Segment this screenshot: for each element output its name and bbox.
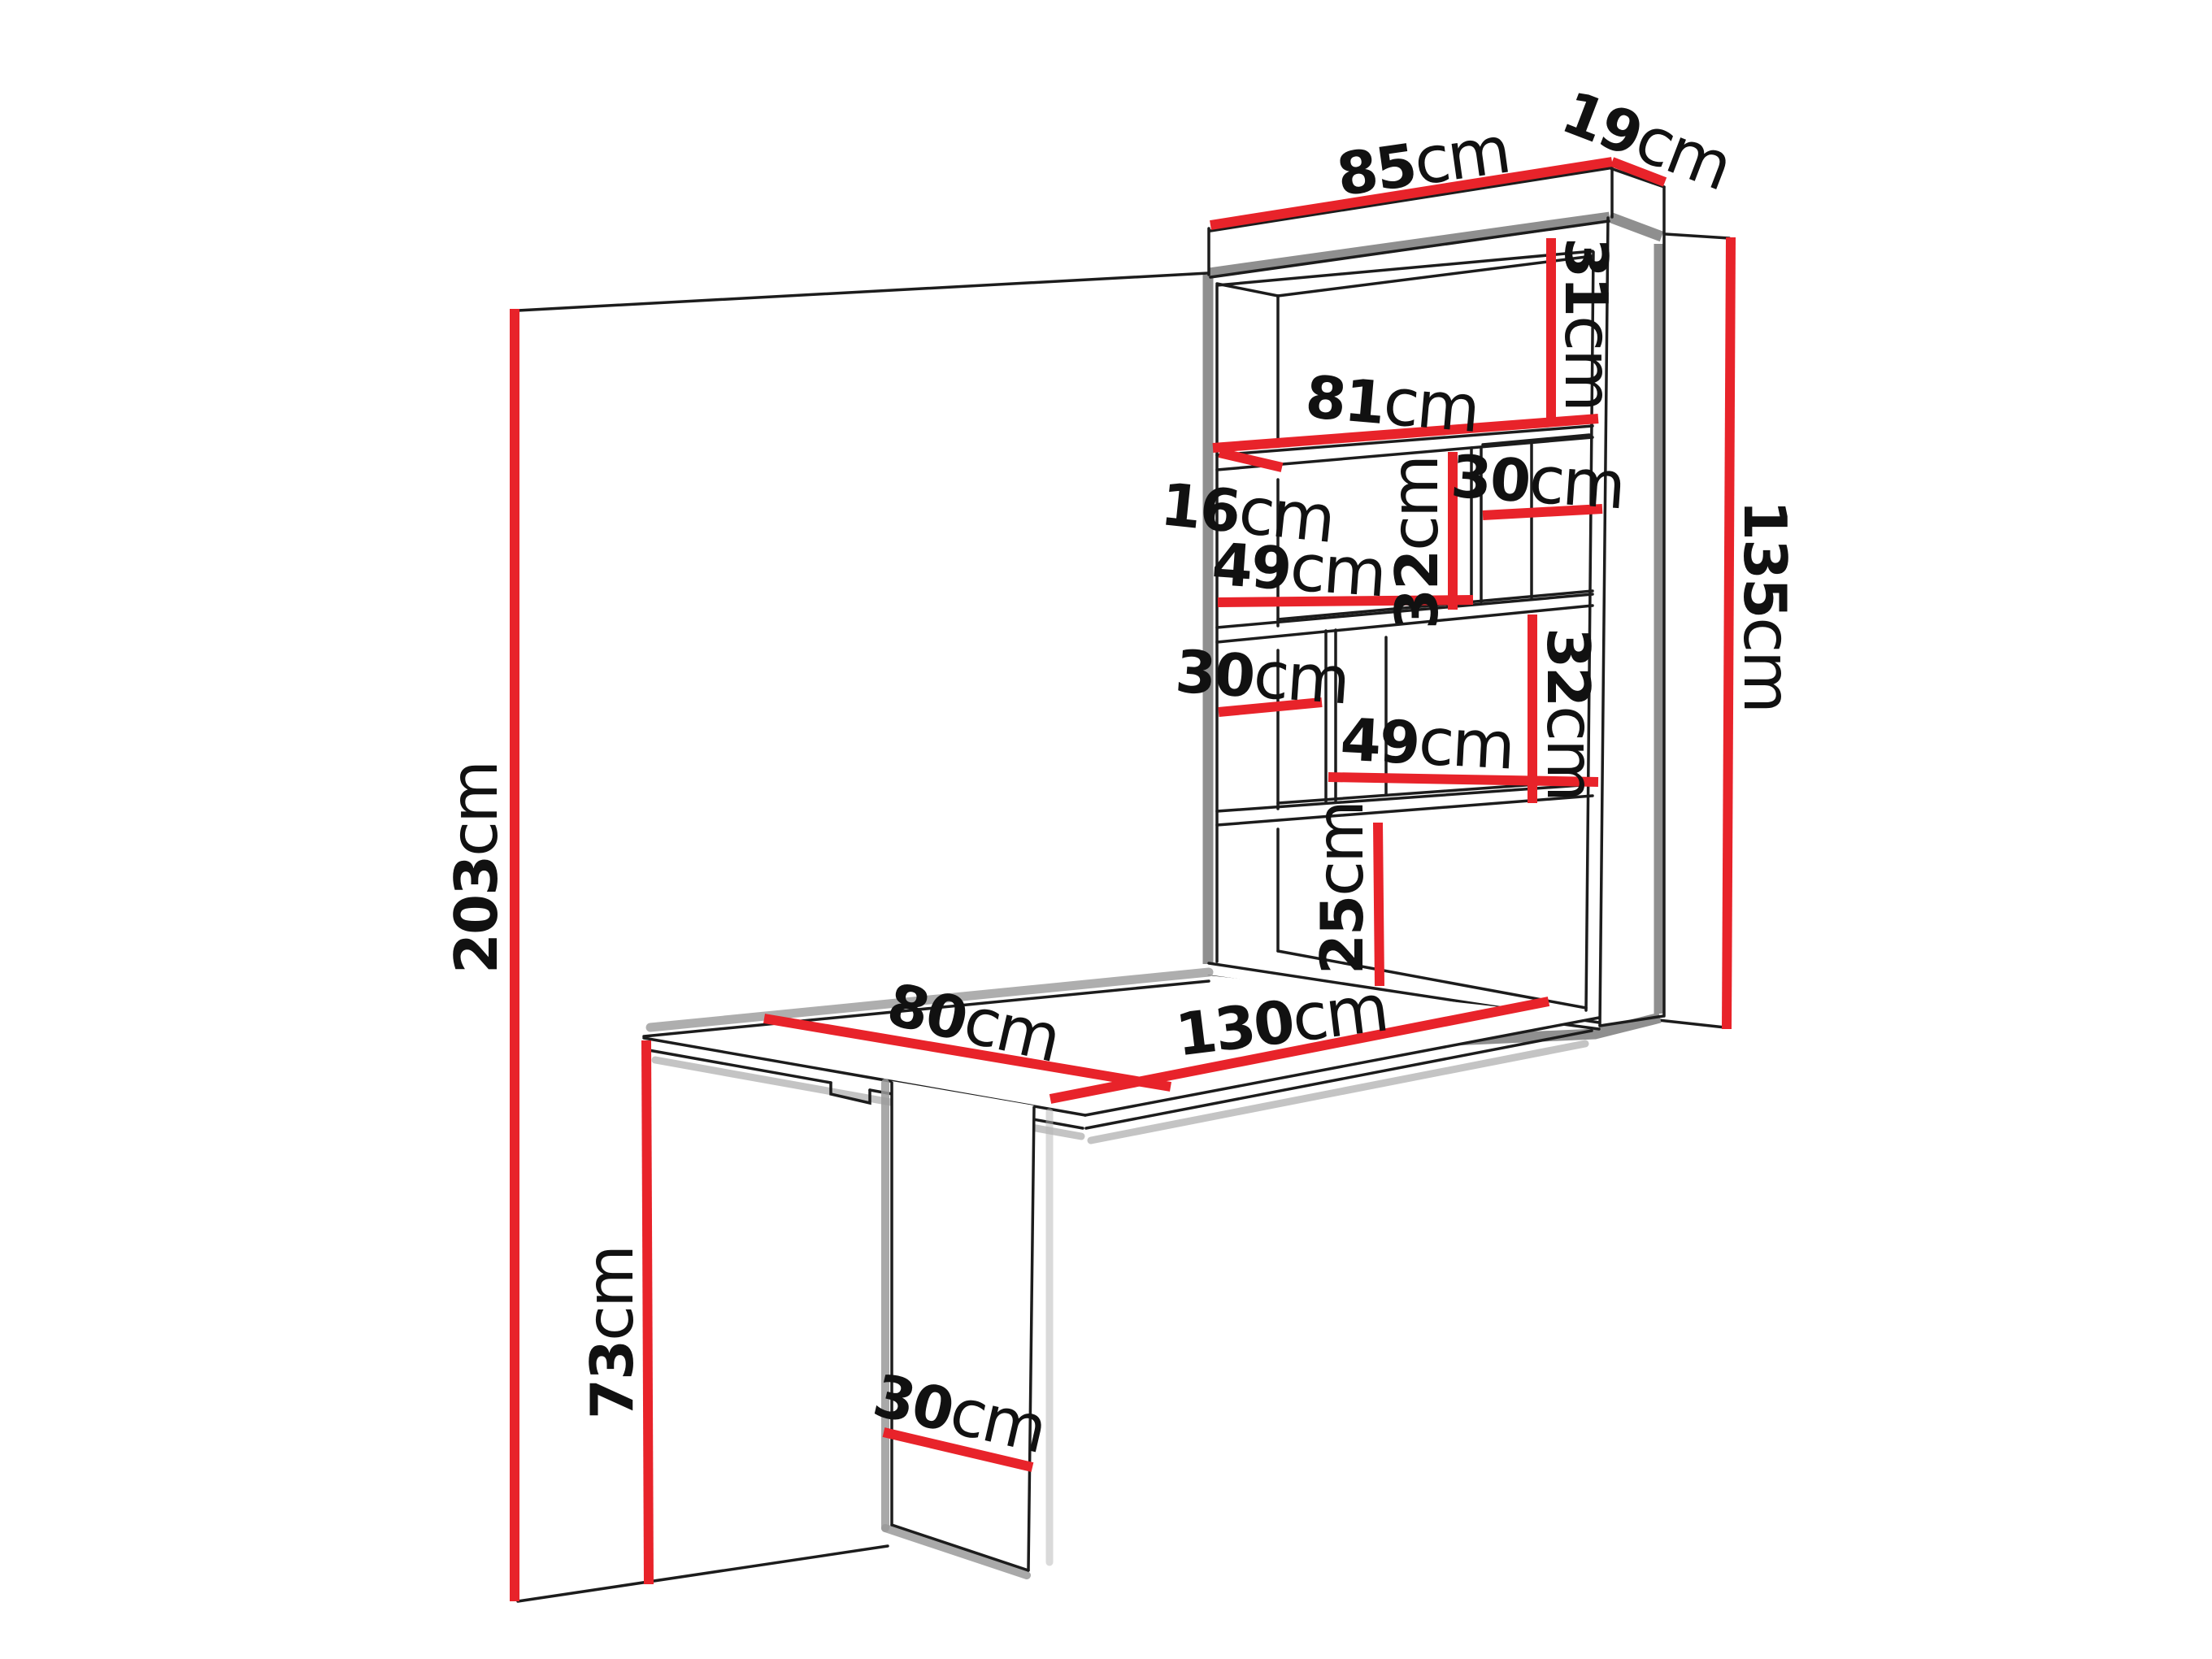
wall-top-edge bbox=[518, 273, 1208, 311]
leg-drawing bbox=[885, 1081, 1050, 1575]
wall-floor-line-right bbox=[1658, 1020, 1725, 1027]
furniture-dimension-diagram: 85cm 19cm 31cm 81cm 16cm 30cm 49cm 32cm … bbox=[0, 0, 2212, 1659]
label-wall-height: 203cm bbox=[437, 762, 512, 974]
label-top-compartment-height: 31cm bbox=[1550, 237, 1626, 410]
label-upper-mid-height: 32cm bbox=[1377, 457, 1453, 629]
label-lower-mid-height: 32cm bbox=[1532, 628, 1608, 800]
svg-text:135cm: 135cm bbox=[1729, 500, 1805, 711]
svg-text:49cm: 49cm bbox=[1210, 524, 1387, 612]
svg-text:25cm: 25cm bbox=[1302, 802, 1378, 975]
label-cabinet-height: 135cm bbox=[1729, 500, 1805, 711]
label-upper-right-width: 30cm bbox=[1449, 436, 1626, 524]
svg-text:32cm: 32cm bbox=[1377, 457, 1453, 629]
svg-text:73cm: 73cm bbox=[572, 1247, 648, 1419]
wall-floor-line-left bbox=[518, 1546, 888, 1601]
height-dim-tick bbox=[1666, 234, 1729, 238]
svg-text:31cm: 31cm bbox=[1550, 237, 1626, 410]
svg-text:49cm: 49cm bbox=[1339, 700, 1515, 784]
svg-text:30cm: 30cm bbox=[1173, 632, 1350, 719]
dim-line-25 bbox=[1378, 823, 1380, 986]
dimension-labels: 85cm 19cm 31cm 81cm 16cm 30cm 49cm 32cm … bbox=[437, 72, 1805, 1468]
label-bottom-compartment-height: 25cm bbox=[1302, 802, 1378, 975]
label-leg-height: 73cm bbox=[572, 1247, 648, 1419]
leg-face bbox=[892, 1081, 1034, 1570]
diagram-page: 85cm 19cm 31cm 81cm 16cm 30cm 49cm 32cm … bbox=[0, 0, 2212, 1659]
label-lower-left-width: 30cm bbox=[1173, 632, 1350, 719]
svg-text:30cm: 30cm bbox=[1449, 436, 1626, 524]
svg-text:32cm: 32cm bbox=[1532, 628, 1608, 800]
svg-text:203cm: 203cm bbox=[437, 762, 512, 974]
label-lower-mid-width: 49cm bbox=[1339, 700, 1515, 784]
label-upper-mid-width: 49cm bbox=[1210, 524, 1387, 612]
